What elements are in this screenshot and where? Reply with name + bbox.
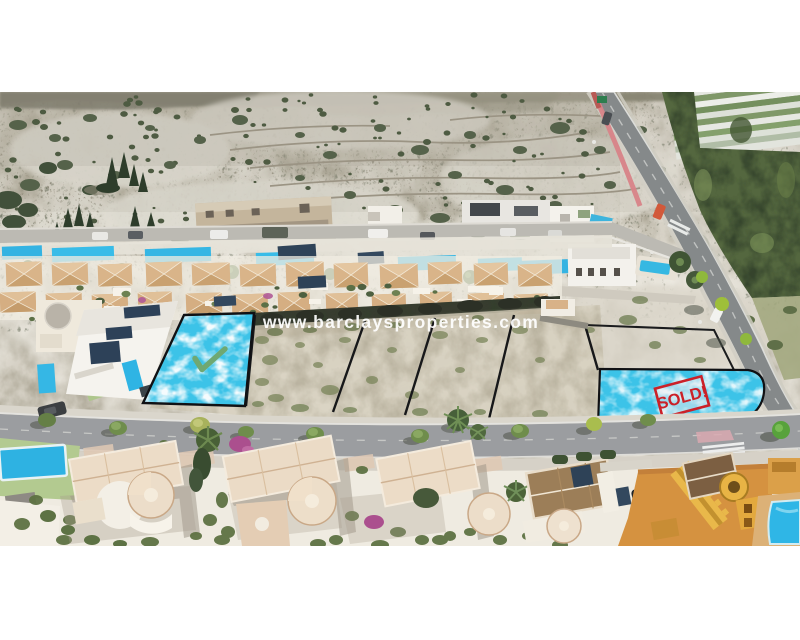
svg-text:www.barclaysproperties.com: www.barclaysproperties.com (262, 312, 539, 332)
